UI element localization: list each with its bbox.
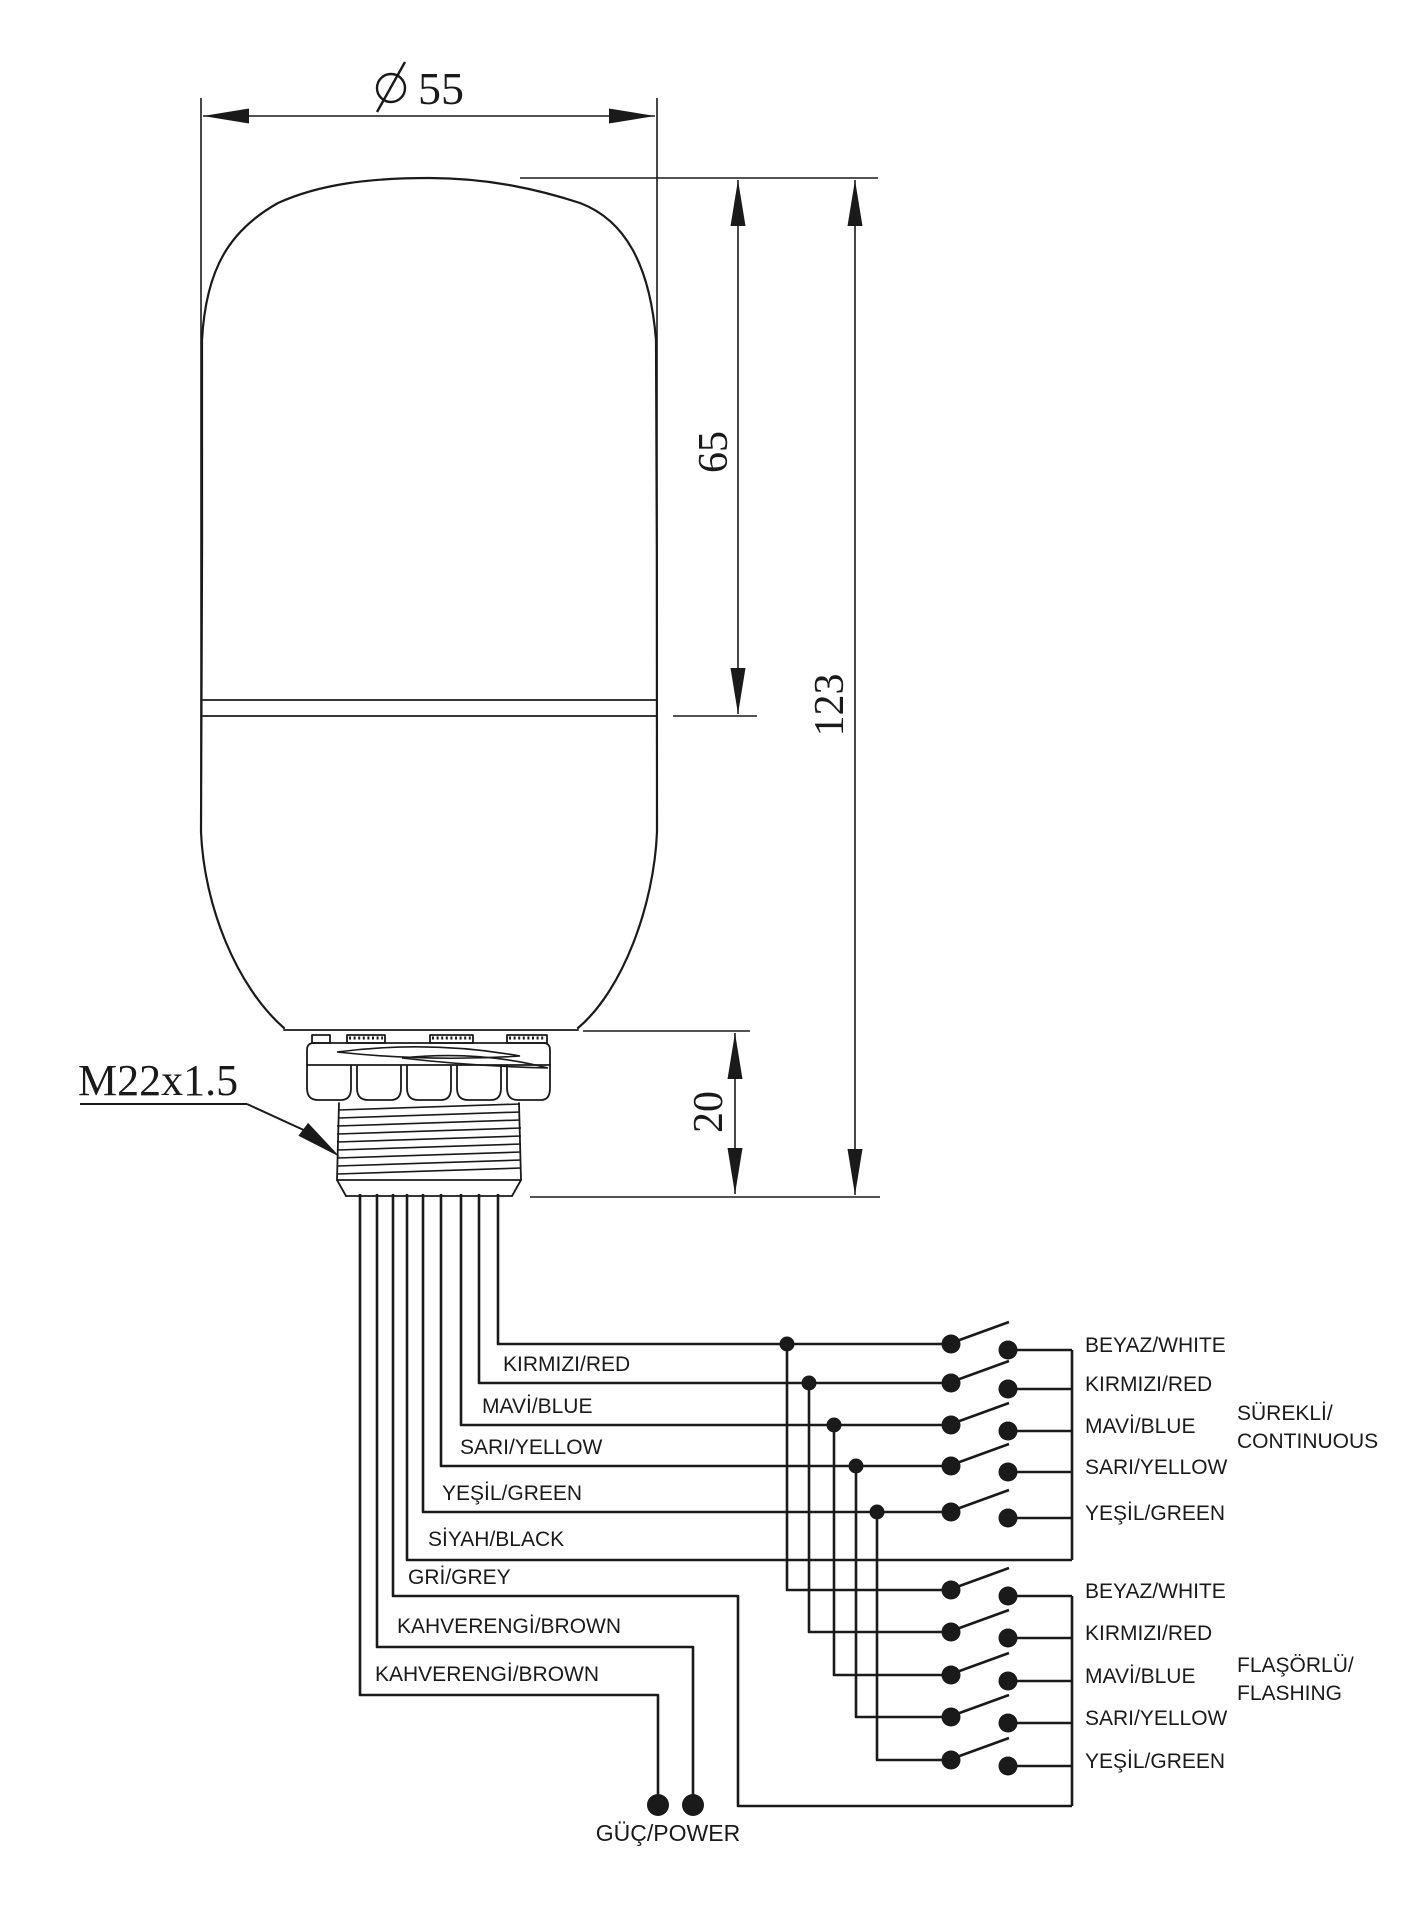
nut-castellation-lobe	[407, 1066, 451, 1100]
technical-drawing-page: 55 65 123 20 M22x1.5	[0, 0, 1428, 1920]
cont-row-label-4: YEŞİL/GREEN	[1085, 1502, 1225, 1525]
switch-group-continuous: BEYAZ/WHITE KIRMIZI/RED MAVİ/BLUE SARI/Y…	[780, 1322, 1379, 1560]
dimension-thread-height: 20	[530, 1031, 880, 1197]
switch-row-continuous-beyaz: BEYAZ/WHITE	[942, 1322, 1226, 1360]
wire-path-siyah	[407, 1194, 1072, 1560]
lamp-bottom-left-curve	[201, 832, 284, 1028]
arrowhead-down	[848, 1149, 863, 1195]
switch-row-flashing-beyaz: BEYAZ/WHITE	[942, 1568, 1226, 1606]
nut-castellation-lobe	[307, 1065, 351, 1100]
arrowhead-left	[203, 109, 249, 124]
switch-row-continuous-sari: SARI/YELLOW	[942, 1444, 1228, 1482]
power-terminal-right-dot	[682, 1794, 704, 1816]
lamp-body	[201, 178, 657, 1030]
feed-drop-yesil	[877, 1512, 951, 1760]
dim-upper-height-value: 65	[691, 431, 737, 473]
cont-row-label-2: MAVİ/BLUE	[1085, 1415, 1195, 1438]
arrowhead-up	[731, 180, 746, 226]
dim-diameter-value: 55	[418, 63, 464, 114]
group-flashing-label-line1: FLAŞÖRLÜ/	[1237, 1654, 1354, 1677]
flash-row-label-2: MAVİ/BLUE	[1085, 1665, 1195, 1688]
lamp-bottom-right-curve	[578, 832, 657, 1028]
flash-row-label-0: BEYAZ/WHITE	[1085, 1580, 1226, 1603]
flash-row-label-1: KIRMIZI/RED	[1085, 1622, 1212, 1645]
nut-top-tab	[347, 1035, 385, 1043]
arrowhead-up	[848, 180, 863, 226]
power-label: GÜÇ/POWER	[596, 1820, 740, 1846]
switch-row-flashing-sari: SARI/YELLOW	[942, 1695, 1228, 1733]
flash-row-label-4: YEŞİL/GREEN	[1085, 1750, 1225, 1773]
wire-bundle: KIRMIZI/RED MAVİ/BLUE SARI/YELLOW YEŞİL/…	[360, 1194, 1072, 1806]
wire-path-mavi	[461, 1194, 951, 1425]
collar-left-chamfer	[337, 1180, 346, 1196]
cont-row-label-3: SARI/YELLOW	[1085, 1456, 1228, 1479]
signal-lamp-drawing: 55 65 123 20 M22x1.5	[0, 0, 1428, 1920]
group-continuous-label-line2: CONTINUOUS	[1237, 1430, 1378, 1453]
dim-thread-height-value: 20	[686, 1091, 732, 1133]
dimension-upper-height: 65	[520, 178, 878, 716]
nut-top-tab	[507, 1035, 547, 1043]
nut-top-tab	[312, 1035, 330, 1043]
mounting-nut	[307, 1035, 550, 1100]
thread-spec-label: M22x1.5	[78, 1056, 238, 1105]
switch-row-continuous-yesil: YEŞİL/GREEN	[942, 1490, 1226, 1528]
nut-castellation-lobe	[357, 1066, 401, 1100]
cont-row-label-0: BEYAZ/WHITE	[1085, 1334, 1226, 1357]
feed-drop-sari	[856, 1466, 951, 1717]
dimension-total-height: 123	[807, 180, 863, 1195]
switch-left-contact-dot	[942, 1335, 961, 1354]
arrowhead-down	[728, 1148, 743, 1194]
arrowhead-down	[731, 668, 746, 714]
diameter-symbol-icon	[377, 62, 405, 112]
switch-row-continuous-kirmizi: KIRMIZI/RED	[942, 1361, 1213, 1399]
switch-row-continuous-mavi: MAVİ/BLUE	[942, 1403, 1196, 1441]
nut-castellation-lobe	[507, 1065, 550, 1100]
wire-path-beyaz	[498, 1194, 951, 1344]
switch-blade	[954, 1322, 1009, 1342]
group-continuous-label-line1: SÜREKLİ/	[1237, 1402, 1333, 1425]
wire-label-yesil: YEŞİL/GREEN	[442, 1482, 582, 1505]
leader-line	[247, 1104, 308, 1132]
wire-label-kirmizi: KIRMIZI/RED	[503, 1353, 630, 1376]
wire-label-kahverengi-2: KAHVERENGİ/BROWN	[375, 1663, 599, 1686]
arrowhead-up	[728, 1033, 743, 1079]
switch-row-flashing-mavi: MAVİ/BLUE	[942, 1653, 1196, 1691]
wire-label-siyah: SİYAH/BLACK	[428, 1528, 564, 1551]
dim-total-height-value: 123	[807, 674, 853, 737]
collar-right-chamfer	[512, 1180, 521, 1196]
lamp-dome-outline	[202, 178, 656, 340]
group-flashing-label-line2: FLASHING	[1237, 1682, 1342, 1705]
wire-label-sari: SARI/YELLOW	[460, 1436, 603, 1459]
wire-label-mavi: MAVİ/BLUE	[482, 1395, 592, 1418]
thread-section	[337, 1103, 521, 1196]
switch-row-flashing-kirmizi: KIRMIZI/RED	[942, 1610, 1213, 1648]
nut-castellation-lobe	[457, 1066, 501, 1100]
thread-ridges	[337, 1104, 521, 1174]
switch-row-flashing-yesil: YEŞİL/GREEN	[942, 1738, 1226, 1776]
power-terminal-left-dot	[647, 1794, 669, 1816]
flash-row-label-3: SARI/YELLOW	[1085, 1707, 1228, 1730]
power-terminals: GÜÇ/POWER	[596, 1794, 740, 1846]
arrowhead-right	[609, 109, 655, 124]
wire-label-gri: GRİ/GREY	[408, 1566, 511, 1589]
cont-row-label-1: KIRMIZI/RED	[1085, 1373, 1212, 1396]
wire-label-kahverengi-1: KAHVERENGİ/BROWN	[397, 1615, 621, 1638]
thread-spec-callout: M22x1.5	[78, 1056, 345, 1163]
